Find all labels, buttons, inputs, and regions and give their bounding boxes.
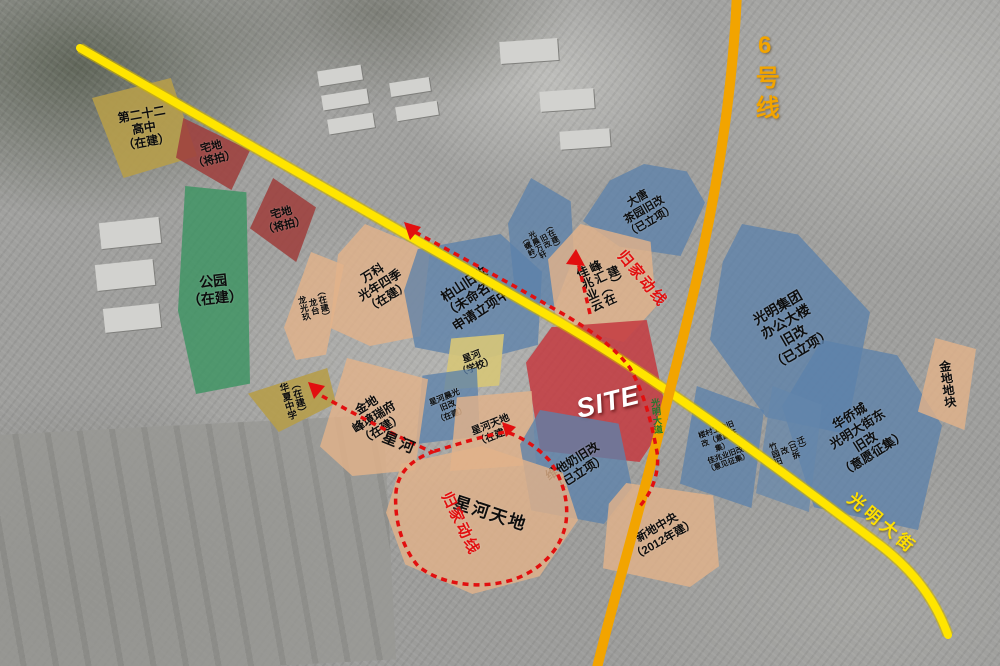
zone-label: 宅地 （将拍） xyxy=(189,136,238,172)
zone-label: 竹园旧 改 （已拆 迁） xyxy=(767,431,811,466)
building xyxy=(499,38,558,64)
zone-label: 新地中央 （2012年建） xyxy=(623,505,699,564)
zone-label: 华侨城 光明大街东 旧改 （意愿征集） xyxy=(815,390,910,480)
planning-map: 第二十二 高中 （在建） 宅地 （将拍） 宅地 （将拍） 公园 （在建） 万科 … xyxy=(0,0,1000,666)
zone-label: 华夏中学 （在建） xyxy=(276,379,308,422)
zone-label: 金地地块 xyxy=(937,359,958,409)
zone-label: 公园 （在建） xyxy=(184,271,243,310)
zone-label: 龙光玖 龙台 （在建） xyxy=(295,286,332,326)
zone-xindi-central: 新地中央 （2012年建） xyxy=(603,483,719,587)
building xyxy=(539,88,594,112)
building xyxy=(559,128,610,149)
zone-label: 第二十二 高中 （在建） xyxy=(117,103,172,153)
zone-label: 星河天地 （在建） xyxy=(470,413,516,450)
metro-line6-label: 6号线 xyxy=(752,32,777,125)
zone-label: 宅地 （将拍） xyxy=(259,202,308,238)
zone-label: 万科 光年四季 （在建） xyxy=(348,254,411,315)
zone-label: 大唐 茶园旧改 （已立项） xyxy=(610,179,677,240)
zone-label: 柏山旧改 （未命名） 申请立项中 xyxy=(433,260,513,334)
zone-label: 楼村工会旧 改（意愿征 集） 佳兆业旧改 （意见征集） xyxy=(693,419,750,476)
